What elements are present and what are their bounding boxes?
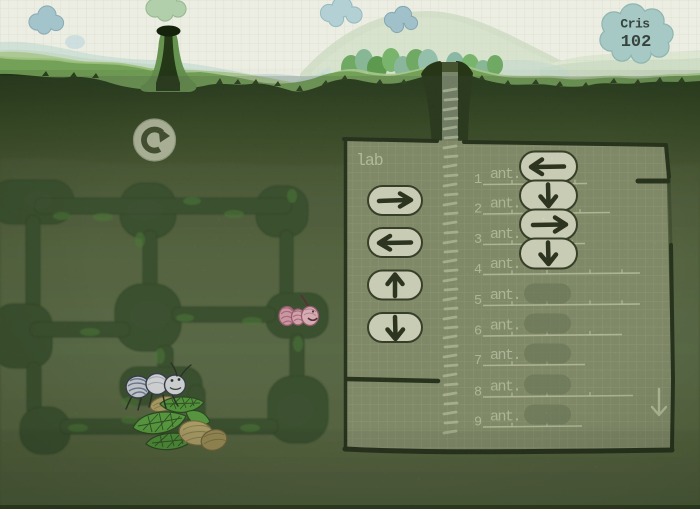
svg-text:Cris: Cris xyxy=(620,17,650,32)
svg-text:102: 102 xyxy=(621,33,652,52)
